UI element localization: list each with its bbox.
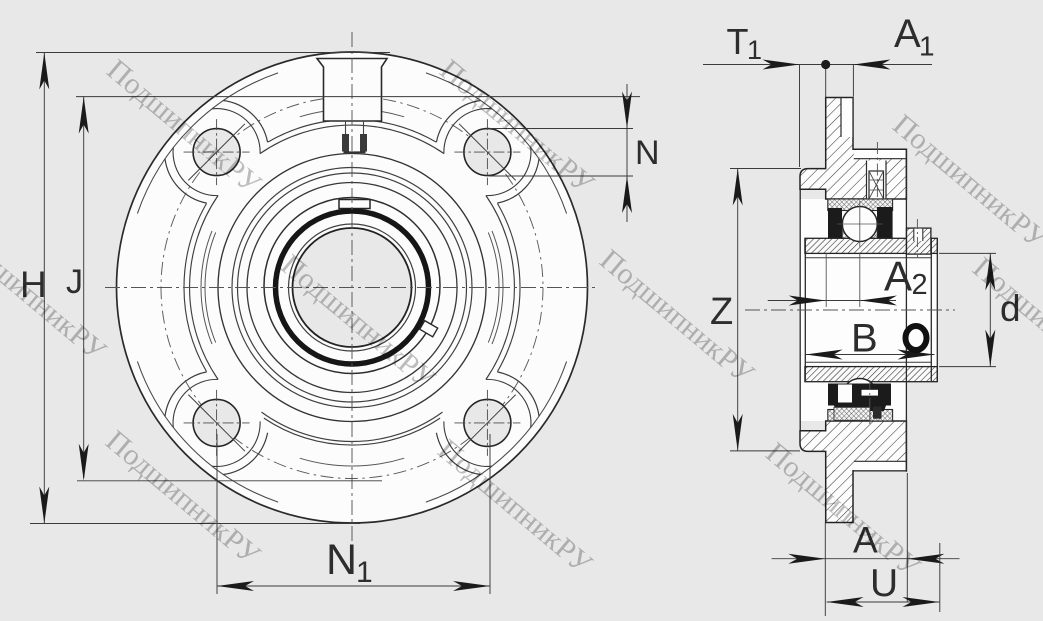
svg-text:B: B [851, 317, 878, 361]
svg-text:N: N [635, 134, 660, 172]
svg-text:A: A [894, 12, 921, 56]
svg-text:2: 2 [912, 269, 928, 301]
svg-text:1: 1 [356, 556, 373, 589]
svg-text:J: J [66, 263, 83, 301]
svg-text:A: A [884, 253, 912, 300]
svg-text:T: T [727, 21, 749, 62]
svg-text:N: N [326, 536, 357, 584]
svg-text:1: 1 [747, 35, 762, 65]
svg-text:1: 1 [919, 31, 935, 62]
